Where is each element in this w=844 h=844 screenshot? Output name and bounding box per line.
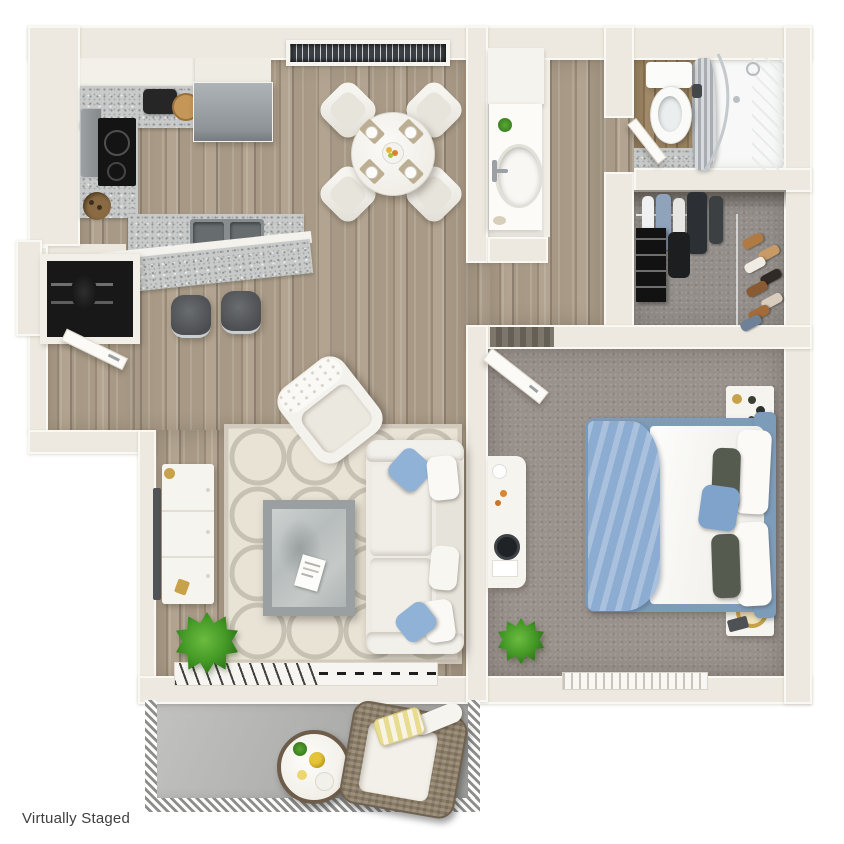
hanging-garment: [709, 196, 723, 244]
fridge-cabinet: [195, 58, 271, 82]
decor-tray-icon: [492, 560, 518, 577]
wall-hall-bath-upper: [604, 26, 634, 118]
bedroom-dresser: [488, 456, 526, 588]
board-dot: [97, 205, 102, 210]
sofa: [366, 440, 464, 654]
console-seam: [162, 556, 214, 558]
tv: [153, 488, 161, 600]
wall-bumpout: [16, 240, 42, 336]
bedroom-window: [562, 672, 708, 690]
burner-icon: [107, 162, 126, 181]
door-handle-icon: [108, 354, 120, 362]
fruit-icon: [388, 153, 393, 158]
vanity-sink: [495, 144, 543, 208]
floor-plan-canvas: Virtually Staged: [0, 0, 844, 844]
toilet-seat: [658, 96, 682, 132]
console-seam: [162, 510, 214, 512]
lemon-icon: [297, 770, 307, 780]
board-dot: [89, 200, 94, 205]
boots-icon: [668, 232, 690, 278]
powder-upper-cabinet: [488, 48, 544, 104]
bed-pillow-accent-blue: [697, 484, 741, 533]
wicker-armchair: [338, 695, 473, 822]
shower-head-icon: [746, 62, 760, 76]
book-icon: [727, 616, 749, 633]
refrigerator: [193, 82, 273, 142]
tp-holder-icon: [692, 84, 702, 98]
bar-stool: [171, 295, 211, 338]
shelf-tower: [636, 228, 666, 302]
bar-stool: [221, 291, 261, 334]
drain-icon: [733, 96, 740, 103]
fruit-bowl: [382, 142, 404, 164]
sofa-pillow-white: [428, 545, 460, 591]
magazine-line: [303, 567, 319, 573]
blue-throw-blanket: [588, 421, 660, 611]
round-board-icon: [83, 192, 111, 220]
console-knob: [206, 574, 210, 578]
door-handle-icon: [529, 385, 539, 394]
gold-decor-icon: [174, 578, 190, 595]
powder-plant-icon: [498, 118, 512, 132]
bedroom-door-opening: [490, 327, 554, 347]
bed-pillow-charcoal: [711, 534, 741, 599]
decor-orange-icon: [495, 500, 501, 506]
tv-console: [162, 464, 214, 604]
toilet-bowl: [650, 86, 692, 144]
wall-right: [784, 26, 812, 704]
living-room-plant: [176, 612, 238, 674]
wall-powder-bottom: [488, 237, 548, 263]
passage-floor: [466, 263, 490, 325]
lemons-icon: [309, 752, 325, 768]
decor-orb-icon: [492, 464, 507, 479]
flower-sprig-icon: [748, 396, 756, 404]
decor-orange-icon: [500, 490, 507, 497]
upper-cabinets: [80, 58, 197, 88]
dining-window-frame: [286, 40, 450, 66]
dish-icon: [315, 772, 334, 791]
wall-hall-closet: [604, 172, 634, 335]
console-knob: [206, 530, 210, 534]
magazine-line: [301, 573, 313, 578]
faucet-spout-icon: [496, 169, 508, 173]
bedroom-plant: [498, 618, 544, 664]
magazine-line: [305, 561, 321, 567]
caption: Virtually Staged: [22, 810, 130, 827]
speaker-icon: [494, 534, 520, 560]
gold-dish-icon: [732, 394, 742, 404]
gold-vase-icon: [164, 468, 175, 479]
toilet-tank: [646, 62, 692, 88]
wall-left-upper: [28, 26, 80, 246]
sofa-pillow-white: [426, 455, 460, 502]
wall-dining-powder: [466, 26, 488, 263]
closet-shelf-line: [736, 214, 738, 326]
hanging-garment: [687, 192, 707, 254]
coffee-table: [263, 500, 355, 616]
blind-track-dashes: [319, 672, 437, 675]
curved-glass-door: [690, 50, 750, 176]
powder-right-trim: [544, 60, 550, 237]
console-knob: [206, 488, 210, 492]
cooktop: [98, 118, 136, 186]
wall-entry-step: [28, 430, 156, 454]
balcony-railing-left: [145, 700, 157, 812]
table-plant-icon: [293, 742, 307, 756]
utility-closet: [40, 254, 140, 344]
burner-icon: [104, 130, 130, 156]
wall-living-bedroom: [466, 325, 488, 702]
plant-icon: [176, 612, 238, 674]
dining-window-glass: [290, 44, 446, 62]
soap-dish-icon: [493, 216, 506, 225]
water-heater-icon: [71, 273, 97, 311]
plant-icon: [498, 618, 544, 664]
